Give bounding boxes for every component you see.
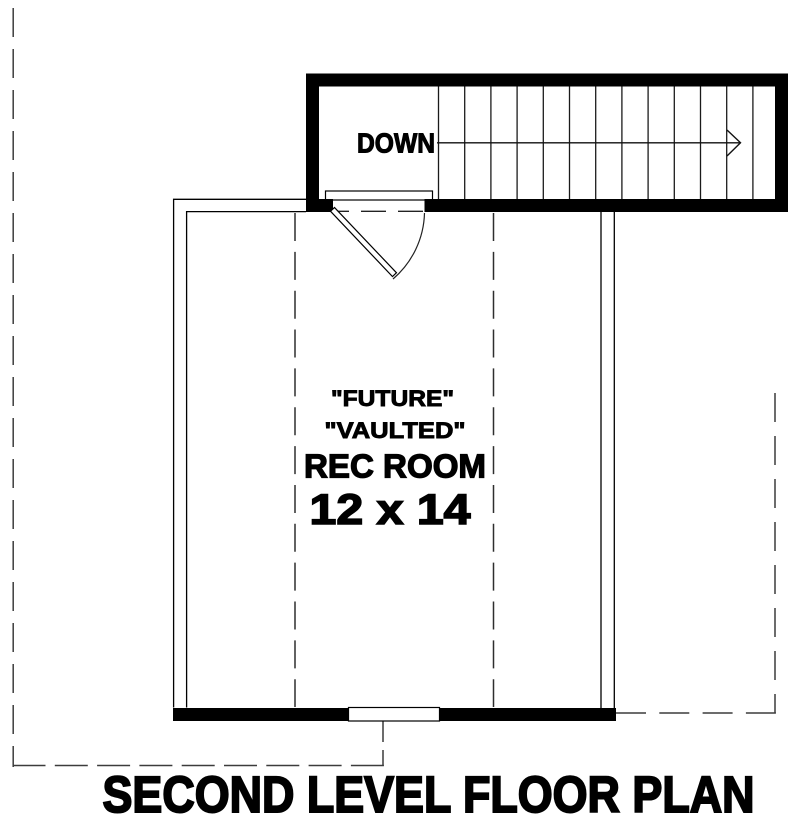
svg-text:12 x 14: 12 x 14 — [310, 486, 471, 534]
svg-text:DOWN: DOWN — [357, 128, 435, 159]
svg-text:REC ROOM: REC ROOM — [304, 448, 486, 485]
svg-text:"VAULTED": "VAULTED" — [325, 418, 466, 443]
svg-text:"FUTURE": "FUTURE" — [331, 386, 454, 411]
svg-text:SECOND LEVEL FLOOR PLAN: SECOND LEVEL FLOOR PLAN — [103, 766, 755, 823]
